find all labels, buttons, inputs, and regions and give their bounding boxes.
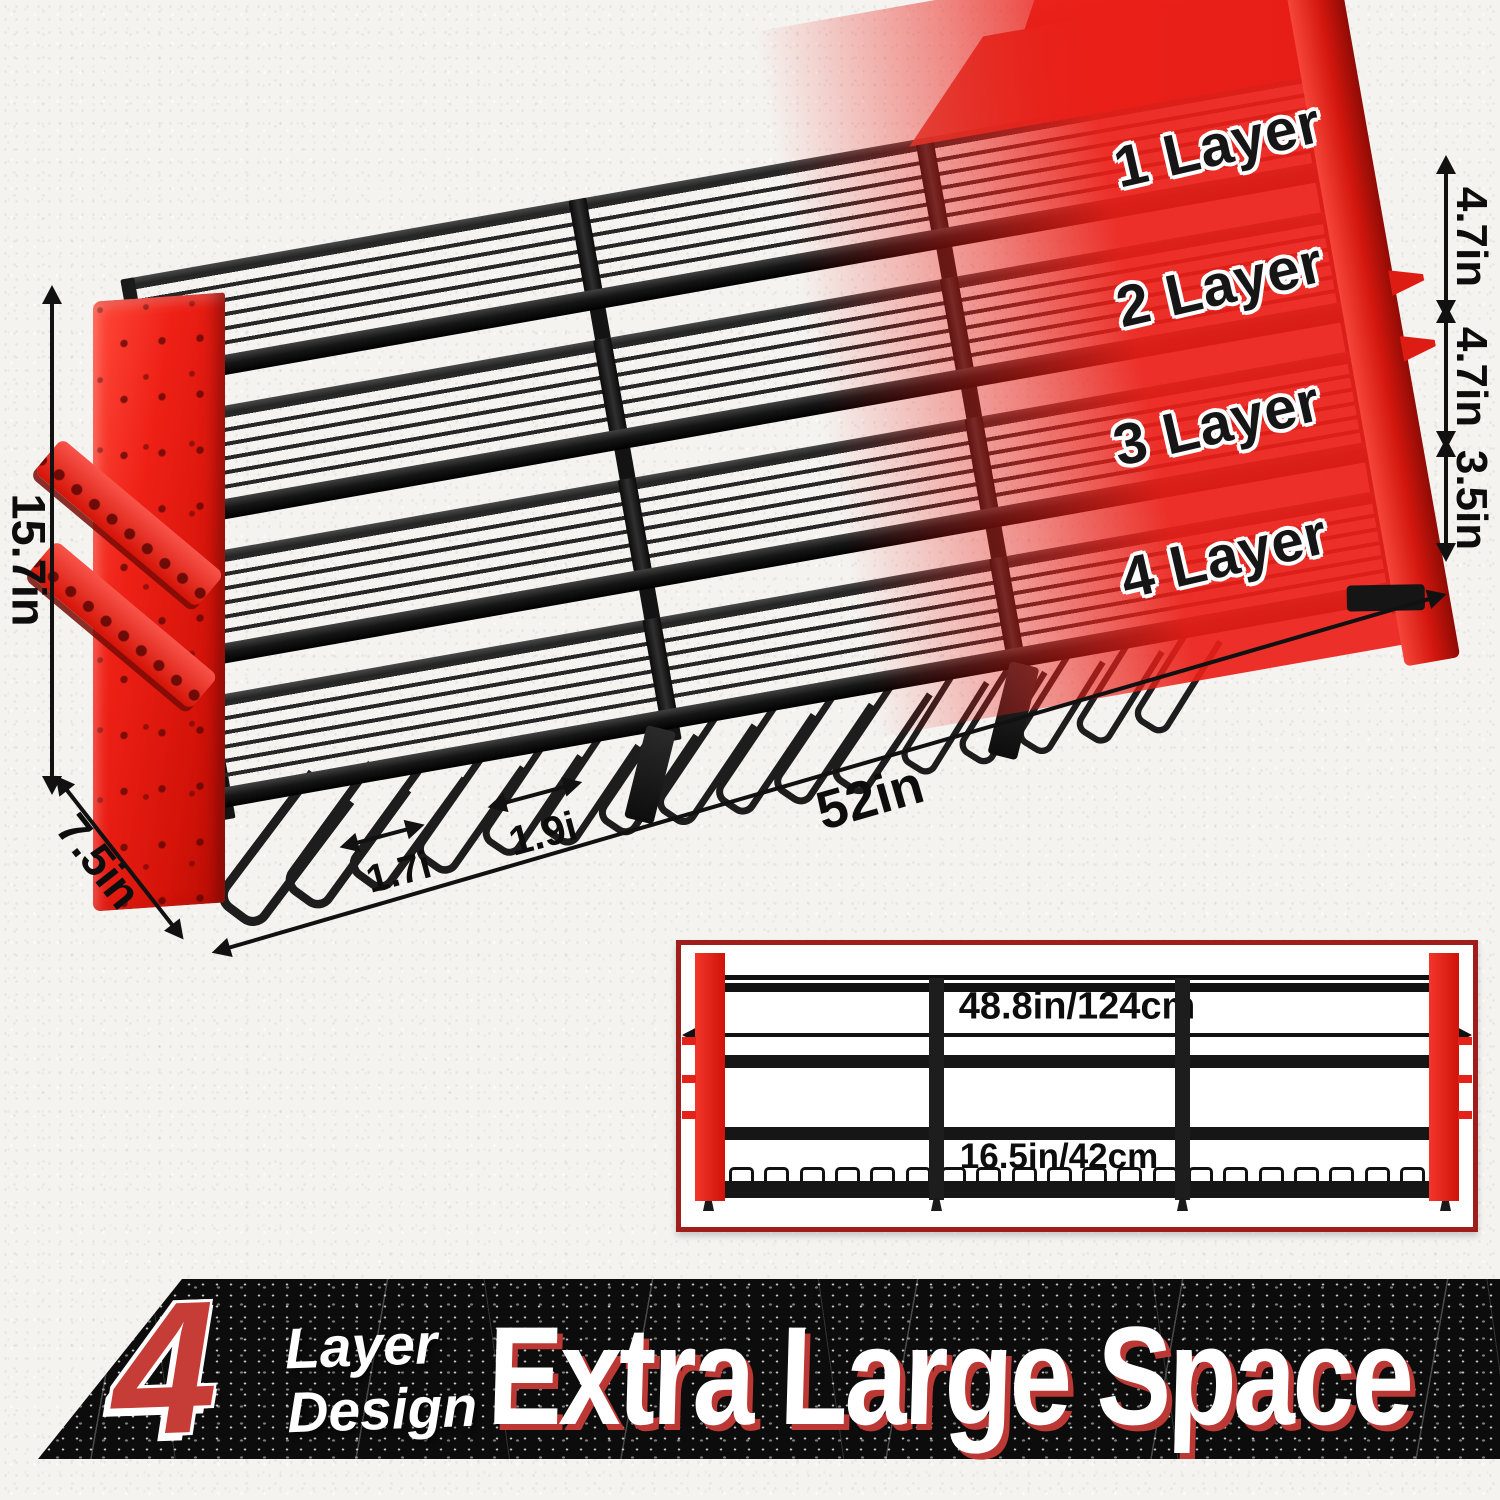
hook	[729, 1167, 754, 1182]
hook	[976, 1167, 1001, 1182]
wall-tab	[682, 1111, 696, 1119]
wall-tab	[682, 1037, 696, 1045]
inset-post	[929, 978, 944, 1200]
wall-tab	[1458, 1111, 1472, 1119]
hook	[800, 1167, 825, 1182]
hook	[1329, 1167, 1354, 1182]
inset-post	[1175, 978, 1190, 1200]
inset-front-view: 48.8in/124cm 16.5in/42cm	[676, 940, 1478, 1232]
product-diagram: 1 Layer 2 Layer 3 Layer 4 Layer 15.7in 7…	[0, 0, 1500, 1500]
layer-gap-2-arrow	[1444, 321, 1448, 433]
hook	[1012, 1167, 1037, 1182]
hook	[941, 1167, 966, 1182]
layer-gap-1-arrow	[1444, 172, 1448, 302]
layer-gap-1-label: 4.7in	[1446, 187, 1496, 287]
banner-sublines: Layer Design	[284, 1311, 478, 1446]
hook	[1188, 1167, 1213, 1182]
hook	[906, 1167, 931, 1182]
inset-overall-width-arrow	[699, 1033, 1455, 1037]
hook	[870, 1167, 895, 1182]
hook	[1117, 1167, 1142, 1182]
inset-bottom-rail	[723, 1181, 1431, 1198]
hook	[1400, 1167, 1425, 1182]
inset-shelf-1	[723, 975, 1431, 992]
inset-shelf-2	[723, 1055, 1431, 1068]
rack-illustration: 1 Layer 2 Layer 3 Layer 4 Layer	[91, 64, 1449, 895]
side-fin	[1388, 264, 1426, 296]
banner-subline-2: Design	[286, 1375, 478, 1446]
wall-tab	[1458, 1075, 1472, 1083]
hook	[1082, 1167, 1107, 1182]
banner-subline-1: Layer	[284, 1311, 476, 1382]
inset-hook-row	[729, 1167, 1425, 1182]
hook	[1047, 1167, 1072, 1182]
end-foot	[1347, 584, 1425, 611]
hook	[1259, 1167, 1284, 1182]
hook	[1294, 1167, 1319, 1182]
hook	[764, 1167, 789, 1182]
hook	[1223, 1167, 1248, 1182]
side-fin	[1400, 330, 1438, 362]
hook	[835, 1167, 860, 1182]
height-dimension-arrow	[50, 302, 54, 778]
hook	[1153, 1167, 1178, 1182]
layer-gap-2-label: 4.7in	[1446, 327, 1496, 427]
inset-left-red-bar	[695, 953, 725, 1201]
hook	[1365, 1167, 1390, 1182]
layer-gap-3-arrow	[1444, 455, 1448, 545]
inset-right-red-bar	[1429, 953, 1459, 1201]
wall-tab	[682, 1075, 696, 1083]
inset-shelf-3	[723, 1127, 1431, 1140]
layer-gap-3-label: 3.5in	[1446, 450, 1496, 550]
banner-number: 4	[109, 1282, 219, 1454]
banner-headline: Extra Large Space	[486, 1300, 1413, 1452]
wall-tab	[1458, 1037, 1472, 1045]
